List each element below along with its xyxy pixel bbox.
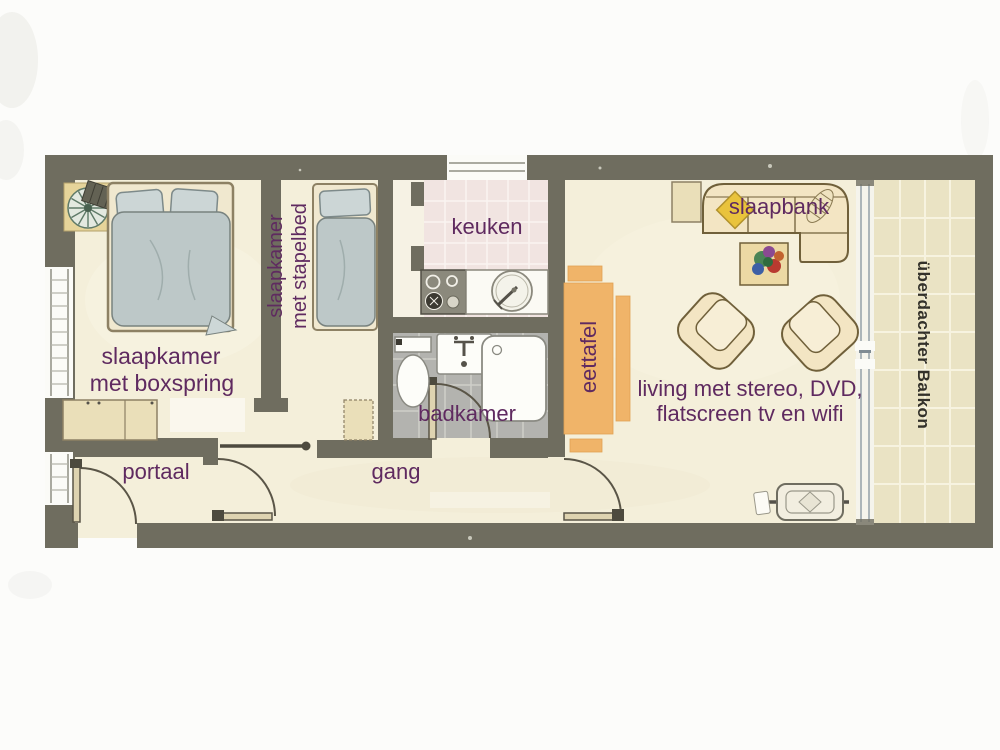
wall-stub-hall [203, 455, 218, 465]
duvet [112, 212, 230, 326]
kitchen-sink-icon [466, 270, 548, 314]
label-bedroom1-line2: met boxspring [90, 370, 234, 396]
double-bed [108, 183, 236, 335]
label-bedroom2-line2: met stapelbed [289, 203, 311, 329]
kitchen-furniture [421, 270, 548, 314]
stove-icon [421, 270, 466, 314]
wall-bathroom-bottom-right [490, 438, 548, 458]
dining-bench-right [616, 296, 630, 421]
wall-bottom [45, 523, 993, 548]
wall-kitchen-bathroom-divider [393, 317, 548, 333]
wall-kitchen-stub-top [411, 182, 424, 206]
label-living-line2: flatscreen tv en wifi [656, 401, 843, 426]
floor-plan: slaapkamer met boxspring slaapkamer met … [0, 0, 1000, 750]
kitchen-window [447, 155, 527, 180]
wall-bathroom-bottom-left [378, 438, 432, 458]
label-bathroom: badkamer [418, 401, 516, 426]
label-sofa: slaapbank [729, 194, 830, 219]
bedroom1-window [45, 267, 73, 398]
pillow [319, 189, 370, 218]
label-living-line1: living met stereo, DVD, [638, 376, 863, 401]
duvet [317, 218, 375, 326]
wardrobe [63, 400, 157, 440]
label-balcony: überdachter Balkon [914, 261, 933, 430]
entrance-doorway [78, 523, 137, 548]
wall-bedroom-divider-foot [254, 398, 288, 412]
label-corridor: gang [372, 459, 421, 484]
single-bed [313, 184, 377, 330]
hall-window [45, 452, 73, 505]
dining-bench-bottom [570, 439, 602, 452]
label-hall: portaal [122, 459, 189, 484]
toilet-icon [395, 337, 431, 407]
dining-bench-top [568, 266, 602, 281]
svg-text:eettafel: eettafel [576, 321, 601, 393]
label-bedroom2-line1: slaapkamer [265, 214, 287, 318]
balcony-door-gap [855, 341, 875, 351]
label-kitchen: keuken [452, 214, 523, 239]
label-dining-table: eettafel [576, 321, 601, 393]
label-bedroom1-line1: slaapkamer [102, 343, 221, 369]
wall-right-balcony [975, 155, 993, 548]
wall-kitchen-bath-right [548, 180, 565, 457]
wardrobe [344, 400, 373, 440]
svg-text:überdachter Balkon: überdachter Balkon [914, 261, 933, 430]
coffee-table [740, 243, 788, 285]
wall-kitchen-stub-bottom [411, 246, 424, 271]
side-table [672, 182, 701, 222]
wall-bedroom1-bottom [60, 438, 218, 457]
wall-bedroom2-right [378, 180, 393, 458]
balcony-glass-wall [855, 180, 875, 525]
